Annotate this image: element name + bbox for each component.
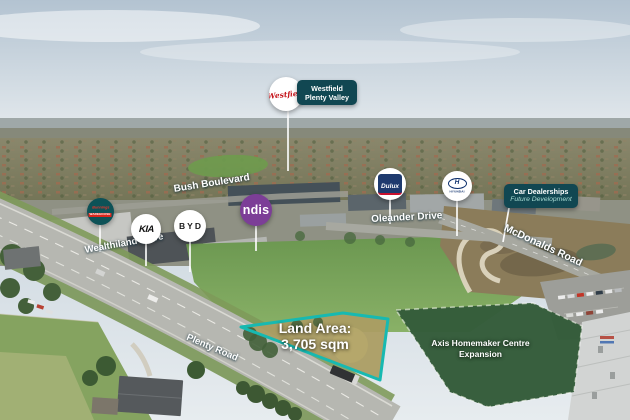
bunnings-warehouse-tag: WAREHOUSE: [89, 213, 112, 217]
ndis-logo-text: ndis: [243, 203, 270, 217]
aerial-site-photo: Westfield Westfield Plenty Valley Bunnin…: [0, 0, 630, 420]
land-area-line1: Land Area:: [245, 321, 385, 337]
hyundai-h-mark: H: [448, 178, 467, 189]
westfield-label-line1: Westfield: [311, 84, 343, 93]
car-dealerships-label: Car Dealerships Future Development: [504, 184, 578, 208]
hyundai-wordmark: HYUNDAI: [449, 190, 464, 193]
hyundai-h-letter: H: [455, 180, 460, 187]
car-dealerships-line1: Car Dealerships: [514, 187, 569, 196]
westfield-label-line2: Plenty Valley: [305, 93, 349, 102]
dulux-logo-chip: Dulux: [378, 174, 402, 195]
land-area-line2: 3,705 sqm: [245, 337, 385, 353]
byd-logo-icon: BYD: [174, 210, 206, 242]
byd-logo-text: BYD: [177, 221, 203, 231]
kia-logo-icon: KIA: [131, 214, 161, 244]
hyundai-logo-icon: H HYUNDAI: [442, 171, 472, 201]
dulux-logo-text: Dulux: [381, 183, 399, 190]
ndis-logo-icon: ndis: [240, 194, 272, 226]
land-area-annotation: Land Area: 3,705 sqm: [245, 321, 385, 352]
bunnings-logo-text: Bunnings: [92, 206, 109, 210]
bunnings-logo-icon: Bunnings WAREHOUSE: [87, 198, 114, 225]
axis-expansion-annotation: Axis Homemaker Centre Expansion: [418, 338, 543, 359]
axis-expansion-line1: Axis Homemaker Centre: [418, 338, 543, 349]
dulux-logo-icon: Dulux: [374, 168, 406, 200]
car-dealerships-line2: Future Development: [510, 196, 572, 204]
axis-expansion-line2: Expansion: [418, 349, 543, 360]
sky: [0, 0, 630, 140]
kia-logo-text: KIA: [137, 224, 155, 235]
westfield-label: Westfield Plenty Valley: [297, 80, 357, 105]
